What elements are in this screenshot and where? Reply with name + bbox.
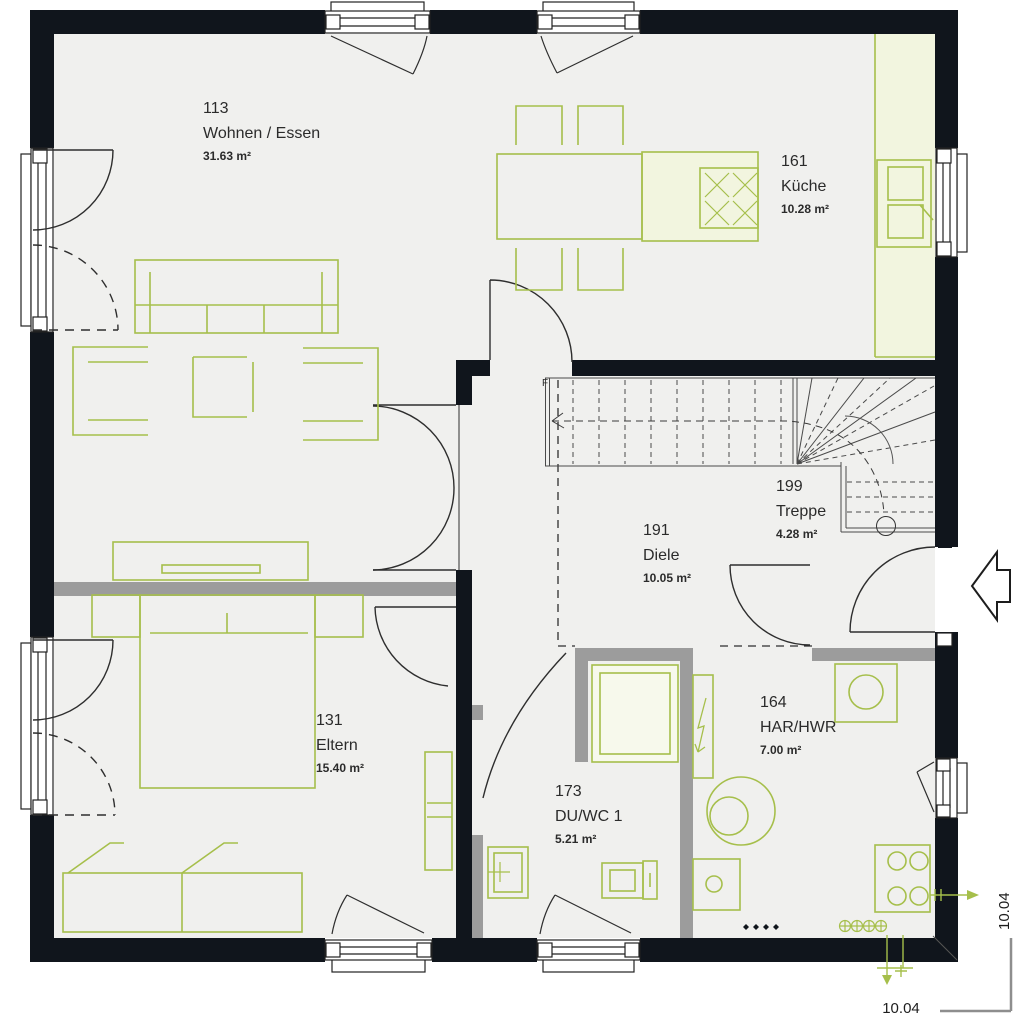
door-jamb-bottom: [937, 633, 952, 646]
stair-note: F: [542, 378, 548, 389]
wall-duwc-stub-b: [472, 835, 483, 938]
wall-eltern-diele: [456, 570, 472, 938]
floor-plan-drawing: [0, 0, 1024, 1024]
window-right-utility: [936, 758, 967, 818]
kitchen-wall-counter: [875, 34, 935, 357]
dimension-right: 10.04: [996, 882, 1013, 940]
wall-duwc-har: [680, 661, 693, 938]
shower: [592, 665, 678, 762]
wall-living-eltern: [54, 582, 456, 596]
dimension-bottom: 10.04: [872, 1000, 930, 1017]
wall-duwc-top: [575, 648, 693, 661]
window-bottom-bath: [537, 940, 640, 972]
floor-plan: 113 Wohnen / Essen 31.63 m² 161 Küche 10…: [0, 0, 1024, 1024]
window-top-living: [325, 2, 430, 33]
wall-duwc-stub-a: [472, 705, 483, 720]
wall-living-stair-right: [572, 360, 935, 376]
window-top-kitchen: [537, 2, 640, 33]
wall-living-stair-left: [456, 360, 490, 376]
entrance-arrow: [972, 552, 1010, 620]
wall-har-top: [812, 648, 935, 661]
wall-shower: [575, 648, 588, 762]
door-jamb-top: [938, 538, 952, 548]
window-right-kitchen: [936, 148, 967, 257]
window-left-bedroom: [21, 637, 53, 815]
floor-area: [54, 34, 935, 938]
wall-diele-stub: [456, 376, 472, 405]
window-left-living: [21, 148, 53, 332]
window-bottom-bedroom: [325, 940, 432, 972]
